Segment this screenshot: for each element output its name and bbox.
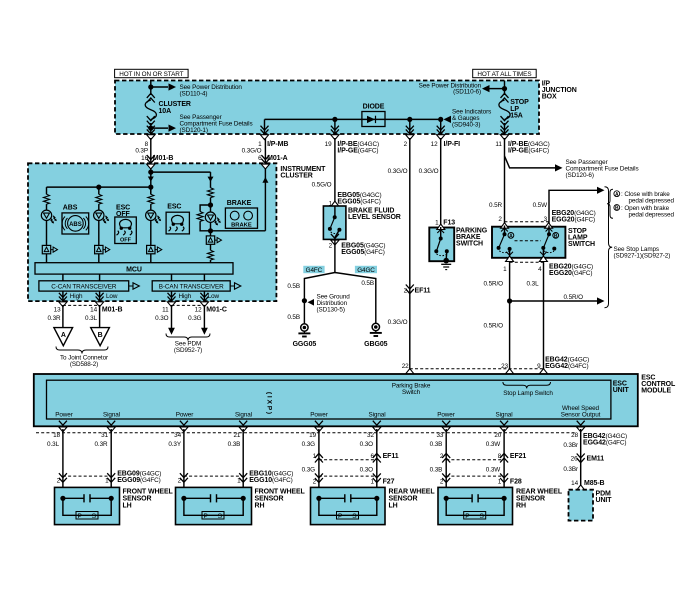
svg-text:0.5R: 0.5R xyxy=(489,202,503,209)
svg-text:1: 1 xyxy=(435,219,439,226)
svg-text:0.3Br: 0.3Br xyxy=(563,466,578,473)
svg-text:2: 2 xyxy=(178,477,182,484)
svg-text:0.3B: 0.3B xyxy=(228,441,241,448)
svg-text:S: S xyxy=(352,513,357,520)
svg-text:0.3L: 0.3L xyxy=(527,280,540,287)
svg-text:(SD952-7): (SD952-7) xyxy=(174,347,202,354)
svg-text:I/P-FI: I/P-FI xyxy=(444,141,461,148)
svg-text:F28: F28 xyxy=(510,478,522,485)
svg-text:0.3G: 0.3G xyxy=(302,466,316,473)
svg-text:1: 1 xyxy=(313,453,317,460)
svg-text:DIODE: DIODE xyxy=(363,104,385,111)
svg-text:BRAKE: BRAKE xyxy=(227,200,252,207)
svg-text:Power: Power xyxy=(310,412,327,419)
svg-text:EF11: EF11 xyxy=(383,453,399,460)
svg-text:2: 2 xyxy=(313,478,317,485)
svg-text:0.3G/O: 0.3G/O xyxy=(242,147,262,154)
svg-text:2: 2 xyxy=(440,453,444,460)
svg-text:Signal: Signal xyxy=(103,412,120,419)
svg-text:RH: RH xyxy=(516,502,526,509)
svg-text:0.3O: 0.3O xyxy=(360,441,374,448)
svg-text:(SD110-6): (SD110-6) xyxy=(453,89,481,96)
svg-text:A: A xyxy=(61,332,66,339)
svg-text:B: B xyxy=(615,206,619,212)
svg-text:0.3G/O: 0.3G/O xyxy=(388,319,408,326)
svg-text:0.3G/O: 0.3G/O xyxy=(388,168,408,175)
svg-text:2: 2 xyxy=(329,243,333,250)
svg-text:EGG05(G4FC): EGG05(G4FC) xyxy=(341,249,384,256)
svg-text:P: P xyxy=(204,513,208,520)
svg-text:21: 21 xyxy=(233,432,240,439)
svg-text:EGG09(G4FC): EGG09(G4FC) xyxy=(117,477,160,484)
svg-text:14: 14 xyxy=(90,307,97,314)
svg-text:C-CAN TRANSCEIVER: C-CAN TRANSCEIVER xyxy=(51,284,117,291)
svg-text:S: S xyxy=(480,513,485,520)
svg-text:High: High xyxy=(70,293,83,300)
svg-text:UNIT: UNIT xyxy=(613,387,630,394)
svg-text:M01-C: M01-C xyxy=(206,307,227,314)
svg-text:0.5R/O: 0.5R/O xyxy=(484,323,504,330)
svg-text:11: 11 xyxy=(162,307,169,314)
svg-text:EGG05(G4FC): EGG05(G4FC) xyxy=(337,199,380,206)
svg-text:P: P xyxy=(338,513,342,520)
svg-text:P: P xyxy=(78,513,82,520)
svg-text:Signal: Signal xyxy=(495,412,512,419)
svg-text:EF21: EF21 xyxy=(510,453,527,460)
svg-text:(SD927-1)(SD927-2): (SD927-1)(SD927-2) xyxy=(614,252,671,259)
svg-text:P: P xyxy=(465,513,469,520)
svg-text:I/P-GE(G4FC): I/P-GE(G4FC) xyxy=(508,147,549,154)
svg-text:0.5W: 0.5W xyxy=(533,202,548,209)
svg-text:G4GC: G4GC xyxy=(357,267,375,274)
svg-text:0.3B: 0.3B xyxy=(430,466,443,473)
svg-text:0.3O: 0.3O xyxy=(155,315,169,322)
svg-text:0.3L: 0.3L xyxy=(85,315,98,322)
svg-text:0.3O: 0.3O xyxy=(360,466,374,473)
svg-text:LH: LH xyxy=(389,502,398,509)
svg-text:I/P-MB: I/P-MB xyxy=(267,141,288,148)
svg-text:19: 19 xyxy=(309,432,316,439)
svg-text:8: 8 xyxy=(498,453,502,460)
svg-text:EGG20(G4FC): EGG20(G4FC) xyxy=(552,216,595,223)
svg-text:ABS: ABS xyxy=(69,222,82,228)
svg-text:EGG42(G4FC): EGG42(G4FC) xyxy=(583,439,626,446)
svg-text:0.3B: 0.3B xyxy=(430,441,443,448)
svg-text:HOT AT ALL TIMES: HOT AT ALL TIMES xyxy=(477,71,531,78)
svg-text:22: 22 xyxy=(402,363,409,370)
svg-text:11: 11 xyxy=(495,141,502,148)
svg-text:S: S xyxy=(218,513,223,520)
svg-text:F27: F27 xyxy=(383,478,395,485)
svg-text:2: 2 xyxy=(440,478,444,485)
svg-text:OFF: OFF xyxy=(120,238,132,244)
svg-text:M01-A: M01-A xyxy=(267,155,288,162)
svg-text:ABS: ABS xyxy=(63,205,78,212)
svg-text:20: 20 xyxy=(494,432,501,439)
svg-text:4: 4 xyxy=(538,266,542,273)
svg-text:G4FC: G4FC xyxy=(306,267,323,274)
svg-text:(SD120-6): (SD120-6) xyxy=(566,172,594,179)
svg-text:0.3Br: 0.3Br xyxy=(563,442,578,449)
svg-text:0.3G: 0.3G xyxy=(302,441,316,448)
svg-text:High: High xyxy=(179,293,192,300)
svg-text:10A: 10A xyxy=(159,108,172,115)
svg-text:18: 18 xyxy=(53,432,60,439)
svg-text:0.3P: 0.3P xyxy=(135,147,148,154)
svg-text:15A: 15A xyxy=(510,113,523,120)
svg-text:A: A xyxy=(509,234,513,240)
svg-text:SWITCH: SWITCH xyxy=(456,241,483,248)
svg-text:F13: F13 xyxy=(443,219,455,226)
svg-text:0.3R: 0.3R xyxy=(95,441,109,448)
svg-text:B: B xyxy=(98,332,103,339)
svg-text:2: 2 xyxy=(404,141,408,148)
svg-text:33: 33 xyxy=(436,432,443,439)
svg-text:(SD130-5): (SD130-5) xyxy=(317,306,345,313)
svg-text:1: 1 xyxy=(503,266,507,273)
svg-text:(SD120-1): (SD120-1) xyxy=(180,127,208,134)
svg-text:6: 6 xyxy=(370,453,374,460)
svg-text:13: 13 xyxy=(54,307,61,314)
svg-text:( I X P ): ( I X P ) xyxy=(266,392,273,414)
svg-text:RH: RH xyxy=(255,502,265,509)
svg-text:12: 12 xyxy=(195,307,202,314)
svg-text:LH: LH xyxy=(123,502,132,509)
svg-text:Power: Power xyxy=(437,412,454,419)
svg-text:1: 1 xyxy=(498,478,502,485)
svg-text:B: B xyxy=(554,234,558,240)
svg-text:A: A xyxy=(615,192,619,198)
svg-text:(SD588-2): (SD588-2) xyxy=(70,361,98,368)
svg-text:GGG05: GGG05 xyxy=(293,341,317,348)
svg-text:(SD110-4): (SD110-4) xyxy=(180,91,208,98)
svg-text:I/P-GE(G4FC): I/P-GE(G4FC) xyxy=(337,147,378,154)
svg-text:0.5R/O: 0.5R/O xyxy=(564,294,584,301)
svg-text:(SD940-3): (SD940-3) xyxy=(452,121,480,128)
svg-text:EGG42(G4FC): EGG42(G4FC) xyxy=(545,363,588,370)
svg-text:1: 1 xyxy=(237,477,241,484)
svg-text:14: 14 xyxy=(571,480,578,487)
svg-text:0.3W: 0.3W xyxy=(486,466,501,473)
svg-text:Stop Lamp Switch: Stop Lamp Switch xyxy=(503,390,553,397)
svg-text:M01-B: M01-B xyxy=(102,307,123,314)
svg-text:0.3G/O: 0.3G/O xyxy=(419,168,439,175)
svg-text:ESC: ESC xyxy=(167,204,181,211)
svg-text:LEVEL SENSOR: LEVEL SENSOR xyxy=(348,214,401,221)
svg-text:CLUSTER: CLUSTER xyxy=(159,101,191,108)
svg-text:pedal depressed: pedal depressed xyxy=(629,198,675,205)
svg-text:Signal: Signal xyxy=(368,412,385,419)
svg-text:SWITCH: SWITCH xyxy=(568,241,595,248)
svg-text:0.5B: 0.5B xyxy=(287,283,300,290)
svg-text:Low: Low xyxy=(106,293,118,300)
svg-text:28: 28 xyxy=(571,432,578,439)
svg-text:Low: Low xyxy=(208,293,220,300)
svg-text:2: 2 xyxy=(57,477,61,484)
svg-text:0.5B: 0.5B xyxy=(287,314,300,321)
svg-text:Signal: Signal xyxy=(235,412,252,419)
svg-text:19: 19 xyxy=(325,141,332,148)
svg-text:MODULE: MODULE xyxy=(641,388,671,395)
svg-text:EGG10(G4FC): EGG10(G4FC) xyxy=(249,477,292,484)
svg-text:0.3L: 0.3L xyxy=(47,441,60,448)
svg-text:Sensor Output: Sensor Output xyxy=(561,412,601,419)
svg-text:2: 2 xyxy=(498,216,502,223)
svg-text:Switch: Switch xyxy=(402,389,421,396)
svg-text:Power: Power xyxy=(55,412,72,419)
svg-text:32: 32 xyxy=(367,432,374,439)
svg-text:26: 26 xyxy=(571,456,578,463)
svg-text:M85-B: M85-B xyxy=(584,480,605,487)
svg-text:MCU: MCU xyxy=(126,266,142,273)
svg-text:0.5B: 0.5B xyxy=(361,280,374,287)
svg-text:BRAKE: BRAKE xyxy=(231,222,252,228)
svg-text:UNIT: UNIT xyxy=(596,497,613,504)
svg-text:1: 1 xyxy=(370,478,374,485)
svg-text:0.5R/O: 0.5R/O xyxy=(484,280,504,287)
svg-text:HOT IN ON OR START: HOT IN ON OR START xyxy=(119,71,183,78)
svg-text:2: 2 xyxy=(404,288,408,295)
svg-text:B-CAN TRANSCEIVER: B-CAN TRANSCEIVER xyxy=(159,284,224,291)
svg-text:Power: Power xyxy=(176,412,193,419)
svg-text:34: 34 xyxy=(174,432,181,439)
svg-text:GBG05: GBG05 xyxy=(364,341,387,348)
svg-text:0.3R: 0.3R xyxy=(48,315,62,322)
svg-text:12: 12 xyxy=(431,141,438,148)
svg-text:0.5G/O: 0.5G/O xyxy=(312,182,332,189)
svg-text:0.3Y: 0.3Y xyxy=(168,441,182,448)
svg-text:EM11: EM11 xyxy=(587,456,605,463)
svg-text:0.3G: 0.3G xyxy=(188,315,202,322)
svg-text:CLUSTER: CLUSTER xyxy=(280,173,312,180)
svg-text:S: S xyxy=(92,513,97,520)
svg-text:BOX: BOX xyxy=(542,94,557,101)
svg-text:0.3W: 0.3W xyxy=(486,441,501,448)
svg-text:31: 31 xyxy=(101,432,108,439)
svg-text:M01-B: M01-B xyxy=(153,155,174,162)
svg-text:EF11: EF11 xyxy=(415,288,431,295)
svg-text:EGG20(G4FC): EGG20(G4FC) xyxy=(549,270,592,277)
svg-text:1: 1 xyxy=(105,477,109,484)
svg-text:pedal depressed: pedal depressed xyxy=(629,212,675,219)
